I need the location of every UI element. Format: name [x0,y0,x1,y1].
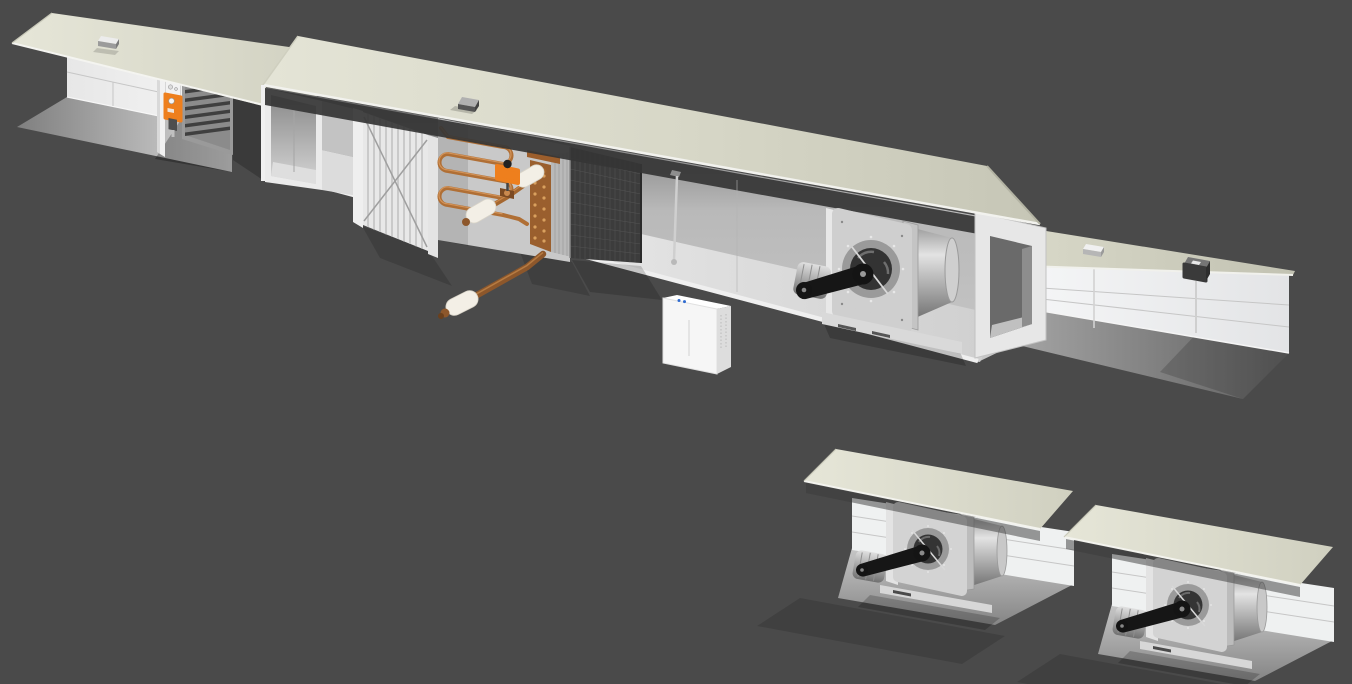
humidifier-cabinet [663,295,731,374]
collar-opening-wall [1022,246,1032,327]
discharge-roof-sensor-dark [1184,257,1210,281]
valve-actuator-knob [503,160,511,168]
humidifier-side [717,306,731,374]
humidifier-blue-mark-1 [678,299,681,302]
valve-actuator-orange [497,166,518,183]
actuator-knob-icon [169,98,175,104]
render-canvas [0,0,1352,684]
actuator-clamp [169,118,178,131]
return-pipe-cap [438,313,444,319]
orange-actuator-body [165,94,181,121]
ahu-render [0,0,1352,684]
fan-pulley-hub [860,271,866,277]
humidifier-blue-mark-2 [683,300,686,303]
actuator-dial2-icon [175,88,178,91]
motor-pulley-hub [802,288,807,293]
interior-floor-wedge [322,150,358,196]
dark-sensor-front [1184,264,1206,281]
discharge-collar [975,212,1046,358]
humidifier-front [663,298,717,374]
supply-pipe-elbow [462,218,470,226]
damper-frame-edge [157,77,160,154]
lance-tip [671,259,677,265]
fan-drum-end [945,238,959,302]
filter-frame-left [353,108,363,228]
filter-frame-right [428,135,438,258]
fin-pack [551,152,572,257]
actuator-dial-icon [168,85,172,89]
